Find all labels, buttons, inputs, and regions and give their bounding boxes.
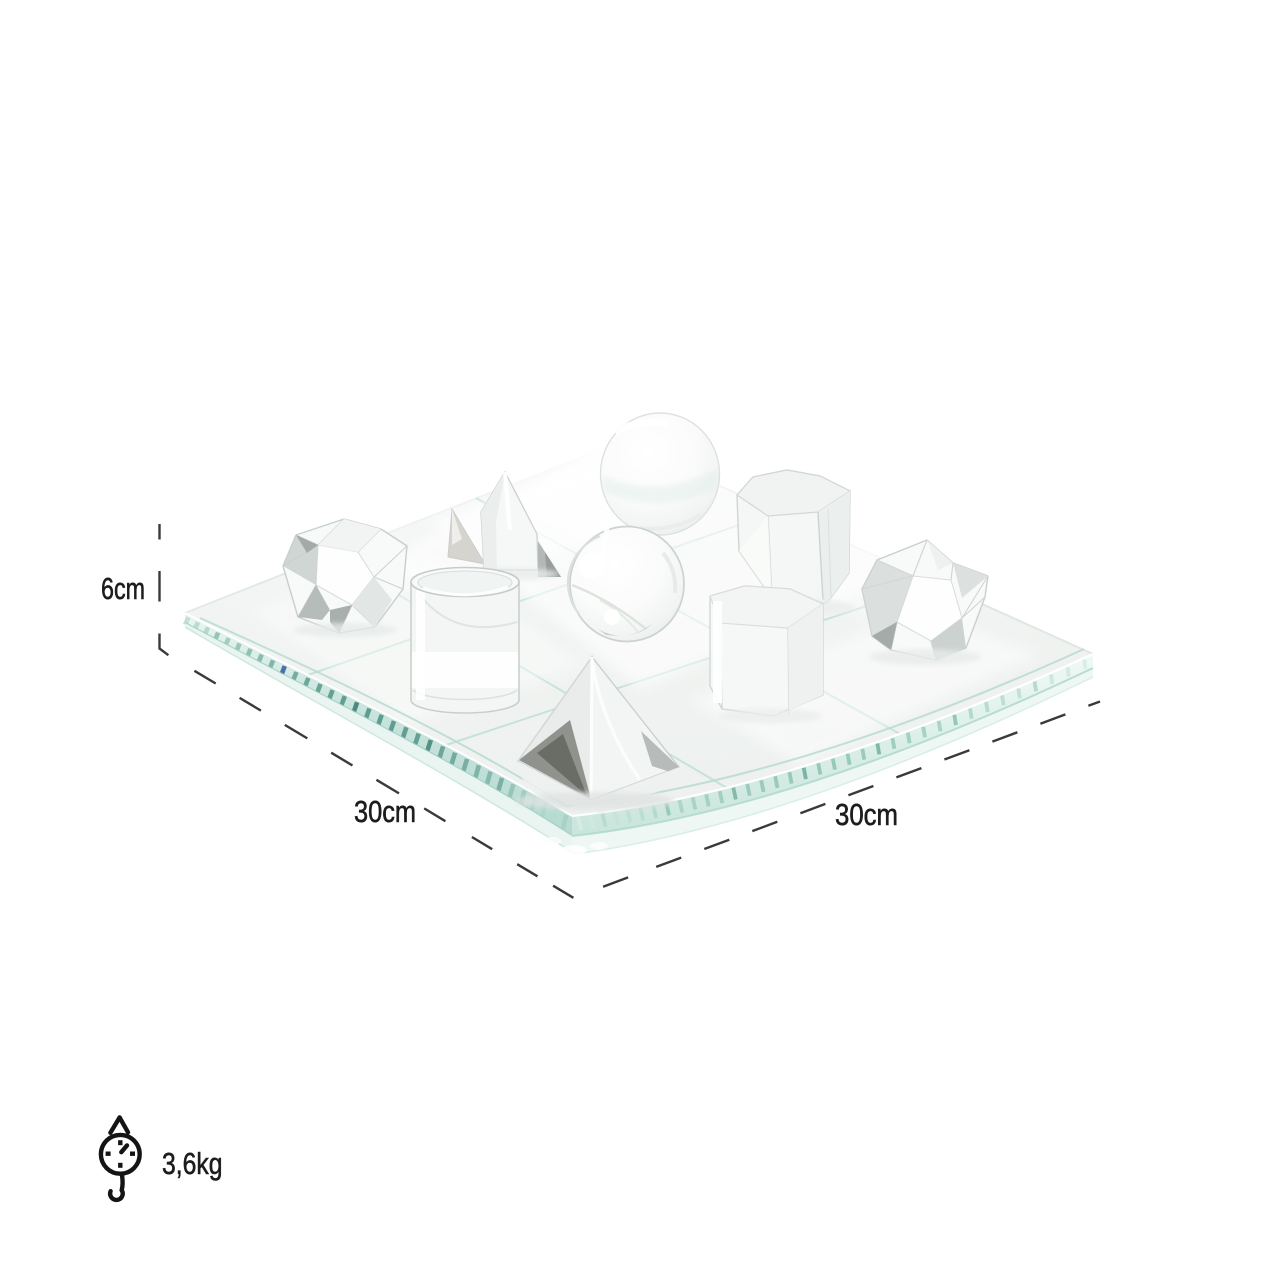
svg-text:30cm: 30cm	[354, 794, 416, 829]
svg-text:30cm: 30cm	[835, 797, 898, 832]
svg-text:6cm: 6cm	[101, 571, 145, 606]
svg-text:3,6kg: 3,6kg	[162, 1146, 223, 1181]
